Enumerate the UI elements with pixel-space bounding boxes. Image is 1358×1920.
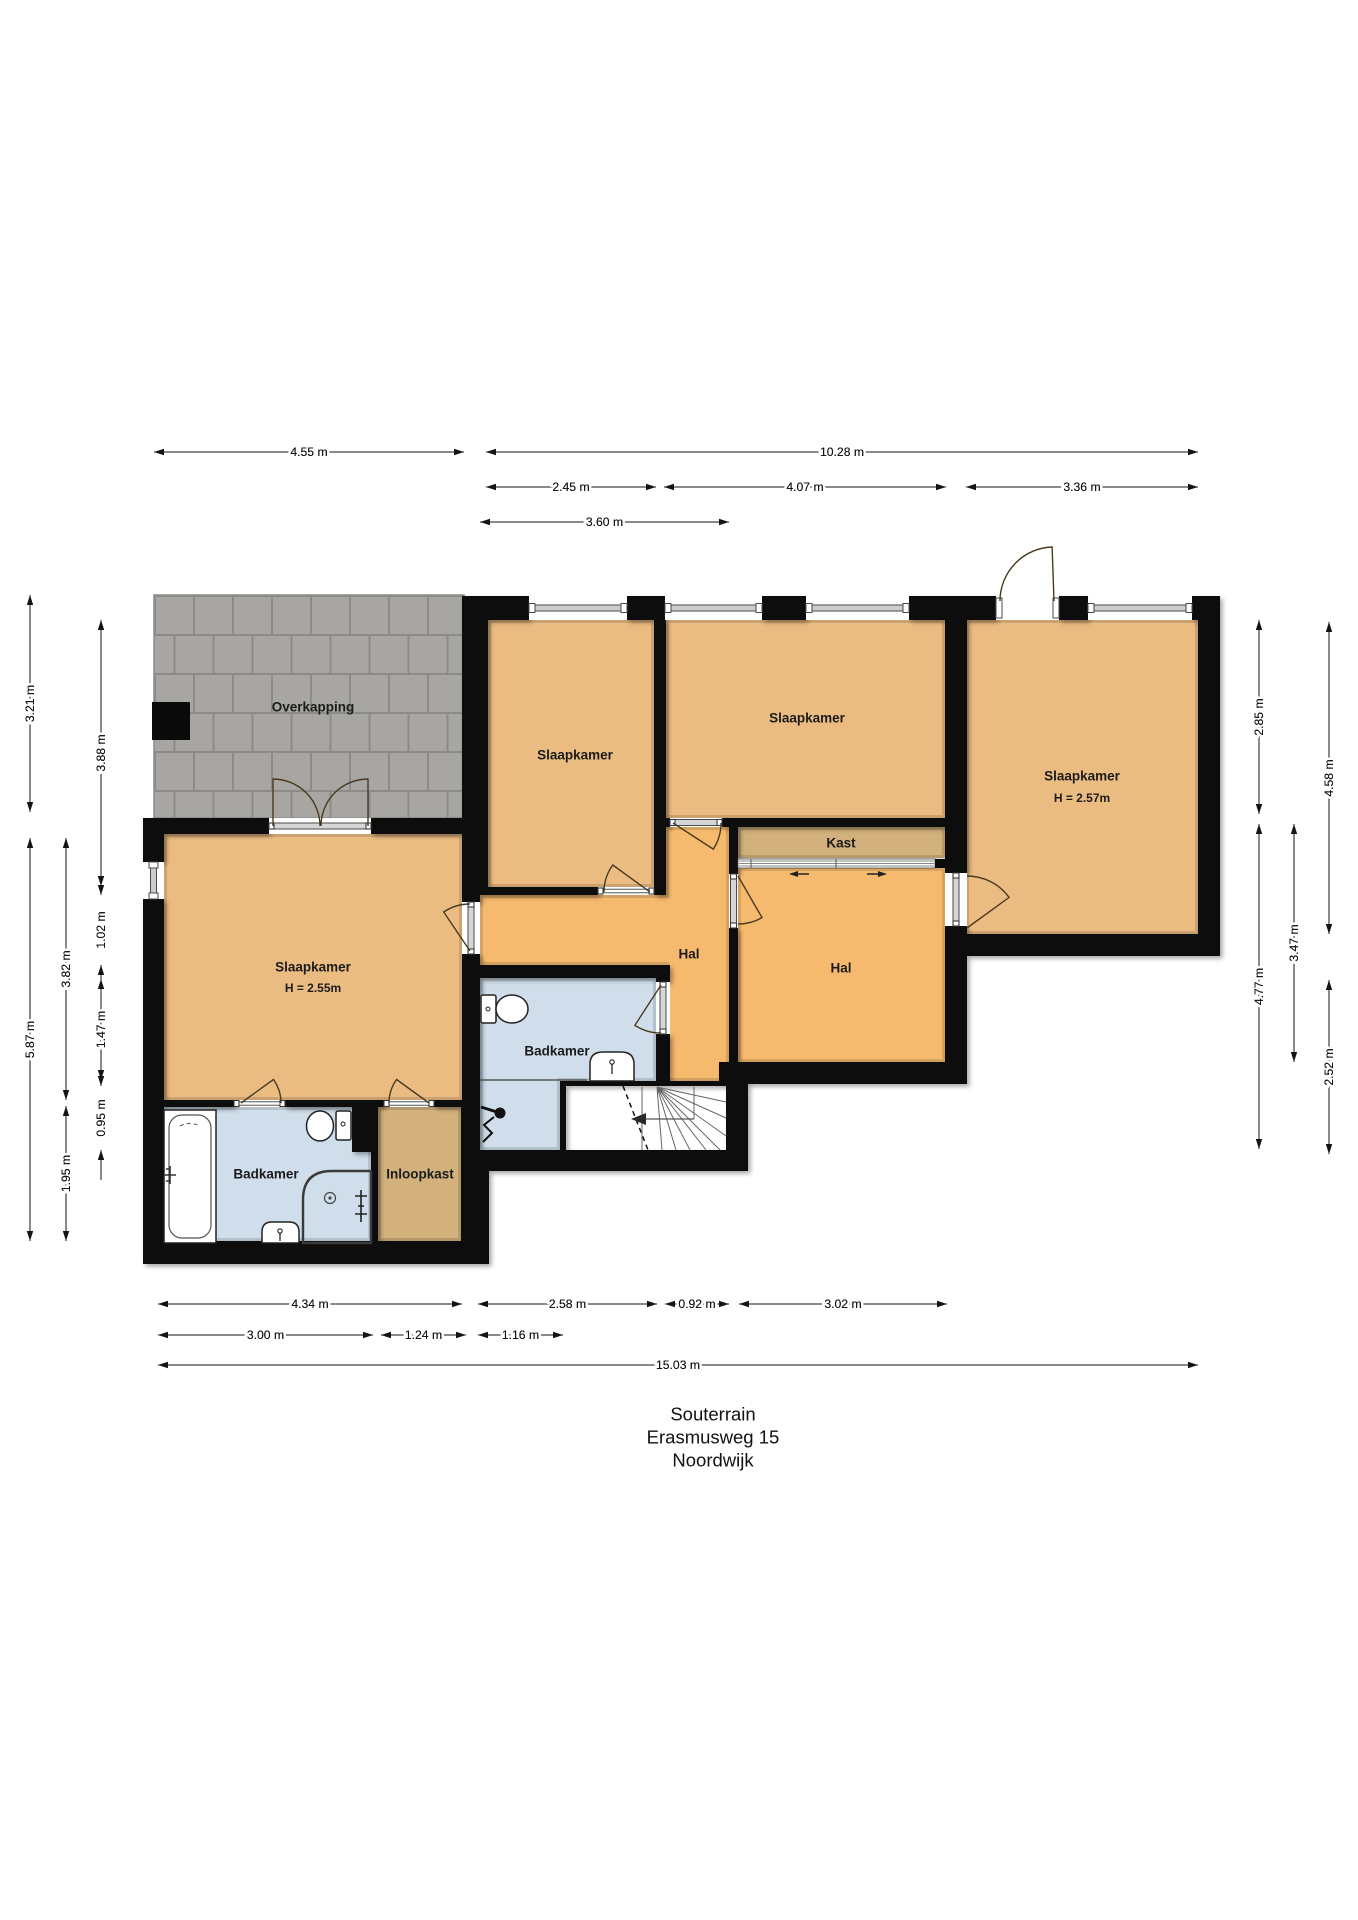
svg-text:4.77 m: 4.77 m [1252,968,1266,1005]
svg-text:10.28 m: 10.28 m [820,445,864,459]
svg-text:1.02 m: 1.02 m [94,911,108,948]
svg-text:1.47 m: 1.47 m [94,1011,108,1048]
svg-text:3.60 m: 3.60 m [586,515,623,529]
svg-text:Badkamer: Badkamer [233,1167,299,1182]
svg-text:Slaapkamer: Slaapkamer [1044,769,1121,784]
svg-text:4.58 m: 4.58 m [1322,759,1336,796]
svg-text:15.03 m: 15.03 m [656,1358,700,1372]
svg-text:Hal: Hal [830,961,851,976]
svg-text:2.58 m: 2.58 m [549,1297,586,1311]
svg-text:3.02 m: 3.02 m [824,1297,861,1311]
svg-text:4.34 m: 4.34 m [291,1297,328,1311]
svg-text:1.24 m: 1.24 m [405,1328,442,1342]
svg-text:0.95 m: 0.95 m [94,1099,108,1136]
svg-text:Noordwijk: Noordwijk [672,1450,754,1471]
svg-text:H = 2.55m: H = 2.55m [285,981,341,995]
svg-text:Erasmusweg 15: Erasmusweg 15 [647,1427,780,1448]
svg-text:Souterrain: Souterrain [670,1404,755,1425]
svg-text:H = 2.57m: H = 2.57m [1054,791,1110,805]
svg-text:1.16 m: 1.16 m [502,1328,539,1342]
svg-text:4.07 m: 4.07 m [786,480,823,494]
svg-text:2.52 m: 2.52 m [1322,1048,1336,1085]
svg-text:Slaapkamer: Slaapkamer [275,960,352,975]
svg-text:1.95 m: 1.95 m [59,1155,73,1192]
svg-text:Badkamer: Badkamer [524,1044,590,1059]
svg-text:3.47 m: 3.47 m [1287,924,1301,961]
svg-text:Overkapping: Overkapping [272,700,355,715]
svg-text:3.82 m: 3.82 m [59,950,73,987]
svg-text:Slaapkamer: Slaapkamer [769,711,846,726]
svg-text:0.92 m: 0.92 m [678,1297,715,1311]
svg-text:3.36 m: 3.36 m [1063,480,1100,494]
svg-text:5.87 m: 5.87 m [23,1021,37,1058]
svg-text:2.45 m: 2.45 m [552,480,589,494]
svg-text:Hal: Hal [678,947,699,962]
svg-text:2.85 m: 2.85 m [1252,698,1266,735]
svg-text:Kast: Kast [826,836,856,851]
svg-text:Inloopkast: Inloopkast [386,1167,454,1182]
svg-text:4.55 m: 4.55 m [290,445,327,459]
svg-text:3.88 m: 3.88 m [94,734,108,771]
svg-text:3.21 m: 3.21 m [23,685,37,722]
svg-text:3.00 m: 3.00 m [247,1328,284,1342]
svg-text:Slaapkamer: Slaapkamer [537,748,614,763]
